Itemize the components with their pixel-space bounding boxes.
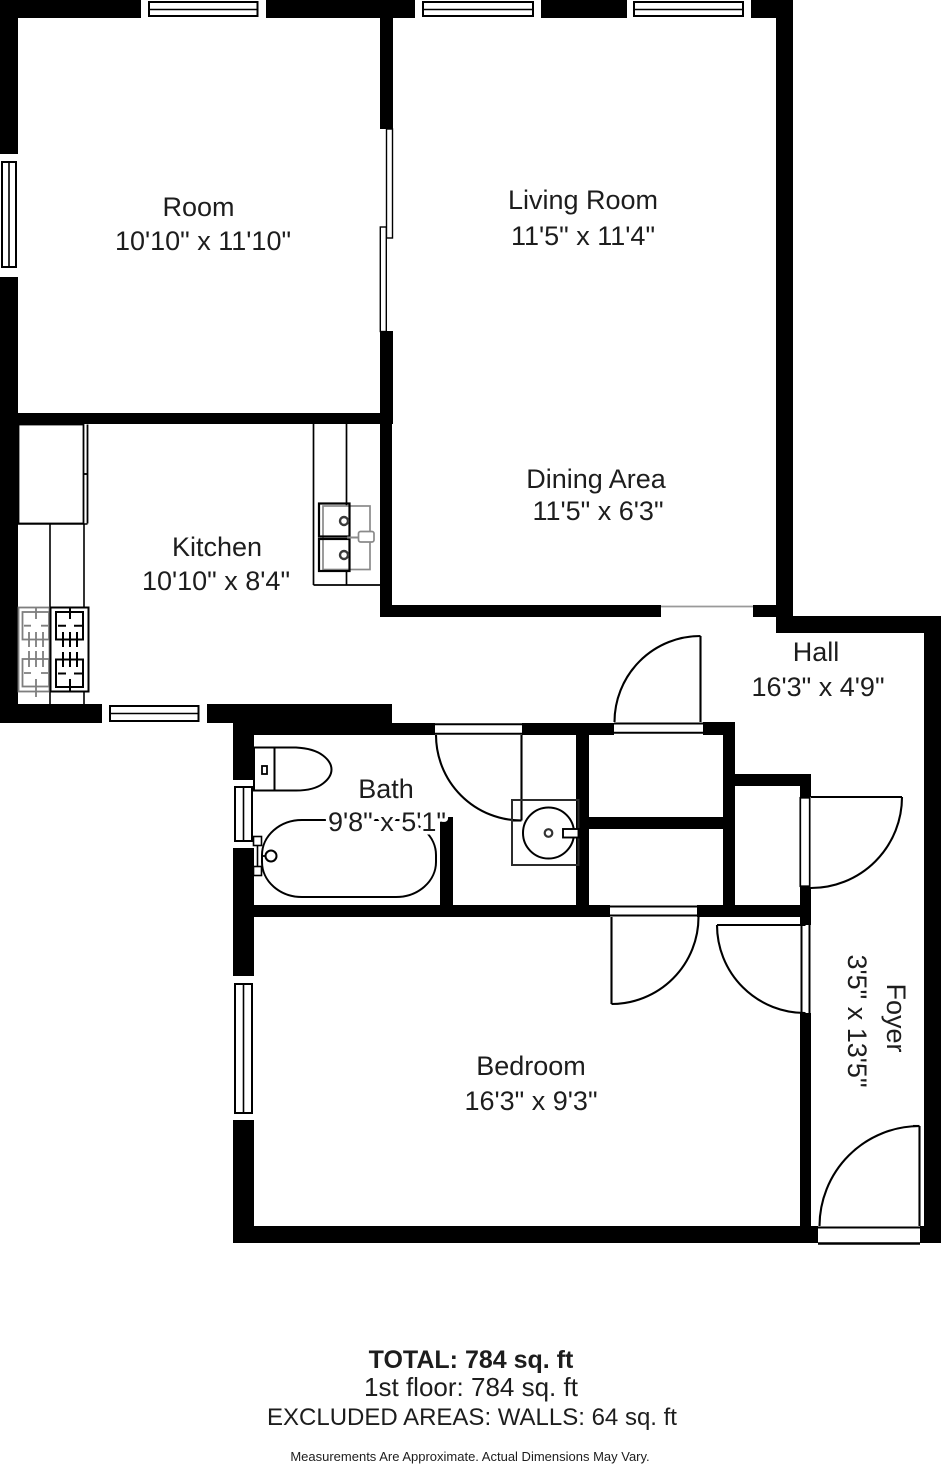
svg-text:Living Room: Living Room (508, 185, 658, 215)
svg-text:16'3" x 4'9": 16'3" x 4'9" (751, 672, 884, 702)
svg-text:11'5" x 11'4": 11'5" x 11'4" (511, 221, 655, 251)
svg-text:TOTAL: 784 sq. ft: TOTAL: 784 sq. ft (369, 1346, 574, 1374)
svg-text:10'10" x 8'4": 10'10" x 8'4" (142, 566, 290, 596)
svg-text:11'5" x 6'3": 11'5" x 6'3" (532, 496, 663, 526)
svg-text:Measurements Are Approximate.: Measurements Are Approximate. Actual Dim… (290, 1449, 649, 1464)
svg-text:Hall: Hall (793, 637, 840, 667)
svg-text:Foyer: Foyer (881, 983, 911, 1052)
svg-text:Dining Area: Dining Area (526, 464, 667, 494)
svg-text:Bedroom: Bedroom (476, 1051, 586, 1081)
svg-text:10'10" x 11'10": 10'10" x 11'10" (115, 226, 291, 256)
svg-text:16'3" x 9'3": 16'3" x 9'3" (464, 1086, 597, 1116)
svg-text:Room: Room (162, 192, 234, 222)
svg-text:9'8" x 5'1": 9'8" x 5'1" (328, 807, 446, 837)
svg-text:1st floor: 784 sq. ft: 1st floor: 784 sq. ft (364, 1372, 579, 1402)
svg-text:3'5" x 13'5": 3'5" x 13'5" (842, 954, 872, 1087)
svg-text:EXCLUDED AREAS: WALLS: 64 sq.: EXCLUDED AREAS: WALLS: 64 sq. ft (267, 1404, 677, 1431)
svg-text:Kitchen: Kitchen (172, 532, 262, 562)
svg-text:Bath: Bath (358, 774, 414, 804)
